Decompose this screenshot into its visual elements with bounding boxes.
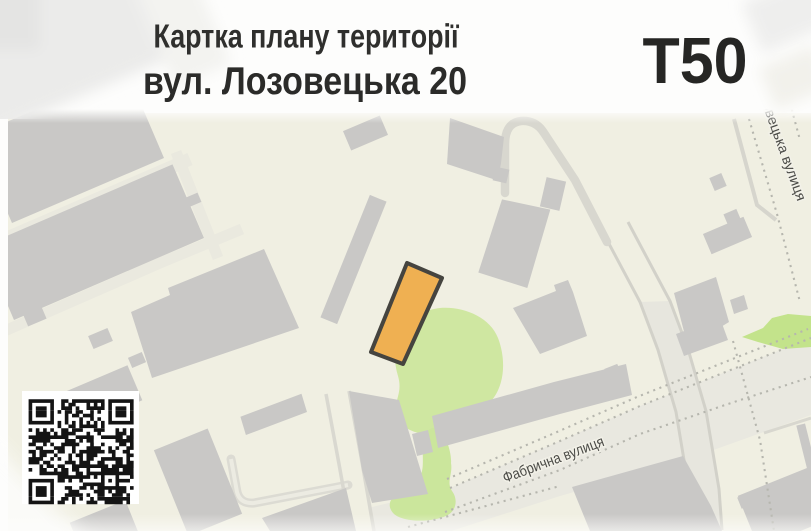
svg-text:Картка плану території: Картка плану території (154, 18, 460, 55)
svg-text:вул. Лозовецька 20: вул. Лозовецька 20 (143, 60, 467, 103)
svg-text:Т50: Т50 (643, 24, 748, 97)
